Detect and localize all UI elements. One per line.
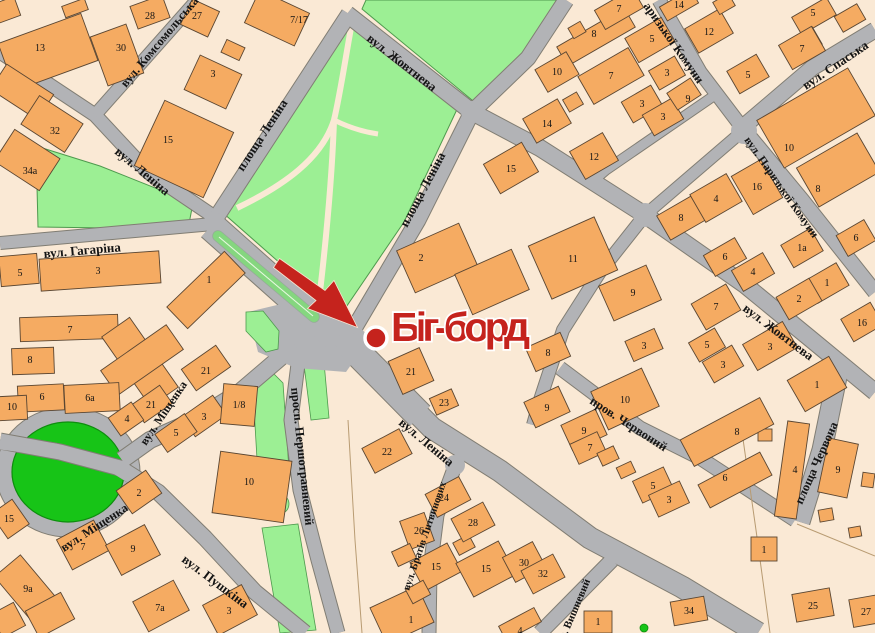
svg-text:4: 4	[125, 414, 130, 425]
svg-text:8: 8	[735, 427, 740, 438]
svg-text:9: 9	[131, 544, 136, 555]
svg-text:8: 8	[28, 355, 33, 366]
svg-text:32: 32	[50, 126, 60, 137]
svg-text:4: 4	[518, 626, 523, 633]
svg-text:5: 5	[650, 34, 655, 45]
svg-text:7/17: 7/17	[290, 15, 308, 26]
svg-text:3: 3	[665, 68, 670, 79]
svg-text:10: 10	[620, 395, 630, 406]
svg-text:27: 27	[861, 607, 871, 618]
svg-text:32: 32	[538, 569, 548, 580]
svg-text:28: 28	[145, 11, 155, 22]
svg-text:9a: 9a	[23, 584, 33, 595]
svg-text:3: 3	[227, 606, 232, 617]
svg-text:4: 4	[714, 194, 719, 205]
svg-text:1: 1	[762, 545, 767, 556]
svg-text:8: 8	[546, 348, 551, 359]
svg-text:10: 10	[7, 402, 17, 413]
svg-text:21: 21	[201, 366, 211, 377]
svg-text:14: 14	[674, 0, 684, 11]
svg-text:5: 5	[705, 340, 710, 351]
svg-text:3: 3	[768, 342, 773, 353]
svg-text:8: 8	[816, 184, 821, 195]
svg-text:9: 9	[686, 94, 691, 105]
svg-text:16: 16	[857, 318, 867, 329]
svg-text:1: 1	[409, 615, 414, 626]
svg-text:5: 5	[746, 70, 751, 81]
svg-text:1а: 1а	[797, 243, 807, 254]
svg-text:3: 3	[211, 69, 216, 80]
svg-text:21: 21	[146, 400, 156, 411]
svg-text:3: 3	[661, 112, 666, 123]
svg-text:7: 7	[68, 325, 73, 336]
svg-text:6: 6	[40, 392, 45, 403]
svg-text:12: 12	[589, 152, 599, 163]
svg-text:1: 1	[596, 617, 601, 628]
svg-text:15: 15	[481, 564, 491, 575]
svg-text:8: 8	[592, 29, 597, 40]
svg-text:14: 14	[542, 119, 552, 130]
svg-text:5: 5	[651, 481, 656, 492]
svg-text:3: 3	[202, 412, 207, 423]
svg-text:2: 2	[137, 488, 142, 499]
svg-text:7: 7	[588, 443, 593, 454]
svg-text:21: 21	[406, 367, 416, 378]
svg-text:4: 4	[793, 465, 798, 476]
svg-text:7: 7	[609, 71, 614, 82]
svg-text:15: 15	[4, 514, 14, 525]
svg-text:3: 3	[721, 360, 726, 371]
svg-text:11: 11	[568, 254, 578, 265]
svg-text:6a: 6a	[85, 393, 95, 404]
svg-text:23: 23	[439, 398, 449, 409]
svg-text:34: 34	[684, 606, 694, 617]
svg-text:7: 7	[714, 302, 719, 313]
svg-text:10: 10	[552, 67, 562, 78]
svg-text:9: 9	[582, 426, 587, 437]
svg-text:28: 28	[468, 518, 478, 529]
svg-text:2: 2	[419, 253, 424, 264]
svg-text:10: 10	[784, 143, 794, 154]
svg-text:3: 3	[640, 99, 645, 110]
svg-text:5: 5	[174, 428, 179, 439]
svg-text:1: 1	[815, 380, 820, 391]
svg-text:1/8: 1/8	[233, 400, 246, 411]
svg-text:5: 5	[811, 8, 816, 19]
svg-text:30: 30	[116, 43, 126, 54]
svg-text:15: 15	[163, 135, 173, 146]
svg-text:13: 13	[35, 43, 45, 54]
svg-text:7: 7	[800, 44, 805, 55]
svg-text:9: 9	[631, 288, 636, 299]
svg-text:6: 6	[723, 252, 728, 263]
svg-text:34a: 34a	[23, 166, 38, 177]
svg-text:3: 3	[642, 341, 647, 352]
svg-text:30: 30	[519, 558, 529, 569]
svg-text:4: 4	[751, 267, 756, 278]
svg-text:25: 25	[808, 601, 818, 612]
svg-text:1: 1	[825, 278, 830, 289]
svg-text:22: 22	[382, 447, 392, 458]
svg-text:3: 3	[667, 495, 672, 506]
svg-text:15: 15	[506, 164, 516, 175]
svg-text:9: 9	[545, 403, 550, 414]
svg-text:7a: 7a	[155, 603, 165, 614]
svg-text:27: 27	[192, 11, 202, 22]
svg-text:7: 7	[617, 4, 622, 15]
svg-text:5: 5	[18, 268, 23, 279]
svg-text:1: 1	[207, 275, 212, 286]
svg-text:6: 6	[854, 233, 859, 244]
svg-text:6: 6	[723, 473, 728, 484]
svg-text:12: 12	[704, 27, 714, 38]
svg-text:3: 3	[96, 266, 101, 277]
svg-text:10: 10	[244, 477, 254, 488]
svg-text:16: 16	[752, 182, 762, 193]
svg-text:8: 8	[679, 213, 684, 224]
svg-text:2: 2	[797, 294, 802, 305]
svg-text:15: 15	[431, 562, 441, 573]
svg-text:Біг-борд: Біг-борд	[391, 304, 530, 350]
svg-text:9: 9	[836, 465, 841, 476]
